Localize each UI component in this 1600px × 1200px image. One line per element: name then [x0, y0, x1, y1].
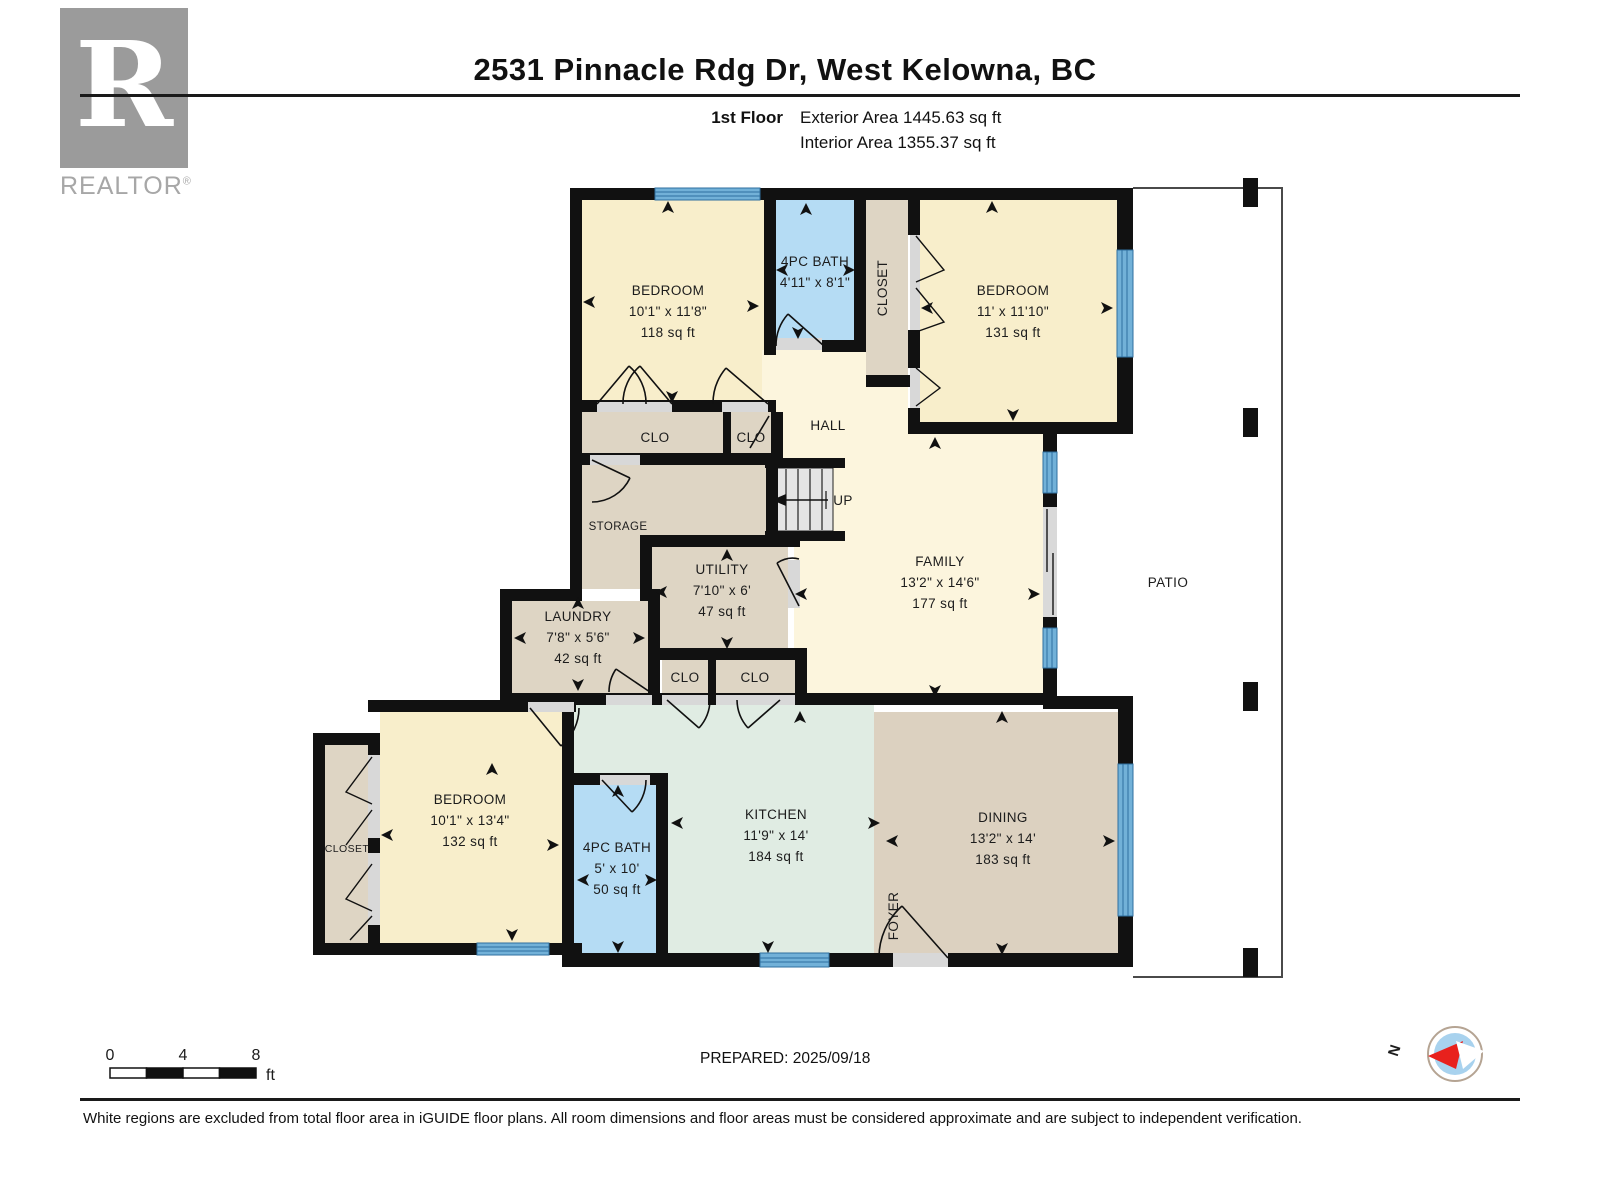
sliding-door-family [1043, 507, 1057, 617]
label-patio: PATIO [1148, 575, 1189, 590]
patio-post [1243, 408, 1258, 437]
area-kitchen: 184 sq ft [748, 849, 803, 864]
window-bedroom-right [1117, 250, 1133, 357]
area-bath-lower: 50 sq ft [593, 882, 640, 897]
patio-post [1243, 682, 1258, 711]
dims-bedroom-top-left: 10'1" x 11'8" [629, 304, 707, 319]
label-closet-lower: CLOSET [325, 843, 370, 855]
dims-bedroom-lower: 10'1" x 13'4" [430, 813, 509, 828]
label-clo-upper-right: CLO [737, 430, 766, 445]
area-bedroom-top-right: 131 sq ft [985, 325, 1040, 340]
scale-unit: ft [266, 1067, 275, 1084]
label-bedroom-top-right: BEDROOM [977, 283, 1050, 298]
window-family-2 [1043, 628, 1057, 668]
area-bedroom-lower: 132 sq ft [442, 834, 497, 849]
label-hall: HALL [810, 418, 845, 433]
label-clo-lower-right: CLO [741, 670, 770, 685]
label-up: UP [833, 493, 853, 508]
dims-bath-lower: 5' x 10' [594, 861, 639, 876]
window-family-1 [1043, 452, 1057, 493]
scale-8: 8 [252, 1047, 261, 1064]
label-utility: UTILITY [695, 562, 748, 577]
dims-kitchen: 11'9" x 14' [743, 828, 808, 843]
label-clo-upper-left: CLO [641, 430, 670, 445]
label-closet-top: CLOSET [875, 260, 890, 316]
scale-4: 4 [179, 1047, 188, 1064]
dims-dining: 13'2" x 14' [970, 831, 1036, 846]
label-bedroom-lower: BEDROOM [434, 792, 507, 807]
area-dining: 183 sq ft [975, 852, 1030, 867]
label-dining: DINING [978, 810, 1028, 825]
floor-plan-page: R REALTOR® 2531 Pinnacle Rdg Dr, West Ke… [0, 0, 1600, 1200]
dims-family: 13'2" x 14'6" [900, 575, 979, 590]
window-dining [1118, 764, 1133, 916]
compass-icon: N [1385, 1027, 1484, 1081]
window-kitchen [760, 953, 829, 967]
area-bedroom-top-left: 118 sq ft [641, 325, 695, 340]
label-family: FAMILY [915, 554, 964, 569]
label-bath-top: 4PC BATH [781, 254, 849, 269]
scale-bar: 0 4 8 ft [106, 1047, 276, 1084]
area-laundry: 42 sq ft [554, 651, 601, 666]
label-storage: STORAGE [589, 521, 648, 533]
dims-bath-top: 4'11" x 8'1" [780, 275, 850, 290]
dims-laundry: 7'8" x 5'6" [546, 630, 609, 645]
label-kitchen: KITCHEN [745, 807, 807, 822]
label-clo-lower-left: CLO [671, 670, 700, 685]
patio-post [1243, 178, 1258, 207]
label-laundry: LAUNDRY [544, 609, 611, 624]
window-top [655, 188, 760, 200]
scale-0: 0 [106, 1047, 115, 1064]
patio-post [1243, 948, 1258, 977]
floor-plan-drawing: BEDROOM 10'1" x 11'8" 118 sq ft 4PC BATH… [0, 0, 1600, 1200]
prepared-date: PREPARED: 2025/09/18 [700, 1050, 870, 1068]
footer-divider [80, 1098, 1520, 1101]
compass-north-label: N [1385, 1043, 1405, 1059]
dims-bedroom-top-right: 11' x 11'10" [977, 304, 1049, 319]
dims-utility: 7'10" x 6' [693, 583, 751, 598]
window-bedroom-lower [477, 943, 549, 955]
area-utility: 47 sq ft [698, 604, 745, 619]
label-bath-lower: 4PC BATH [583, 840, 651, 855]
label-foyer: FOYER [886, 892, 901, 941]
stairs [772, 468, 833, 531]
area-family: 177 sq ft [912, 596, 967, 611]
disclaimer-text: White regions are excluded from total fl… [83, 1110, 1483, 1127]
label-bedroom-top-left: BEDROOM [632, 283, 705, 298]
